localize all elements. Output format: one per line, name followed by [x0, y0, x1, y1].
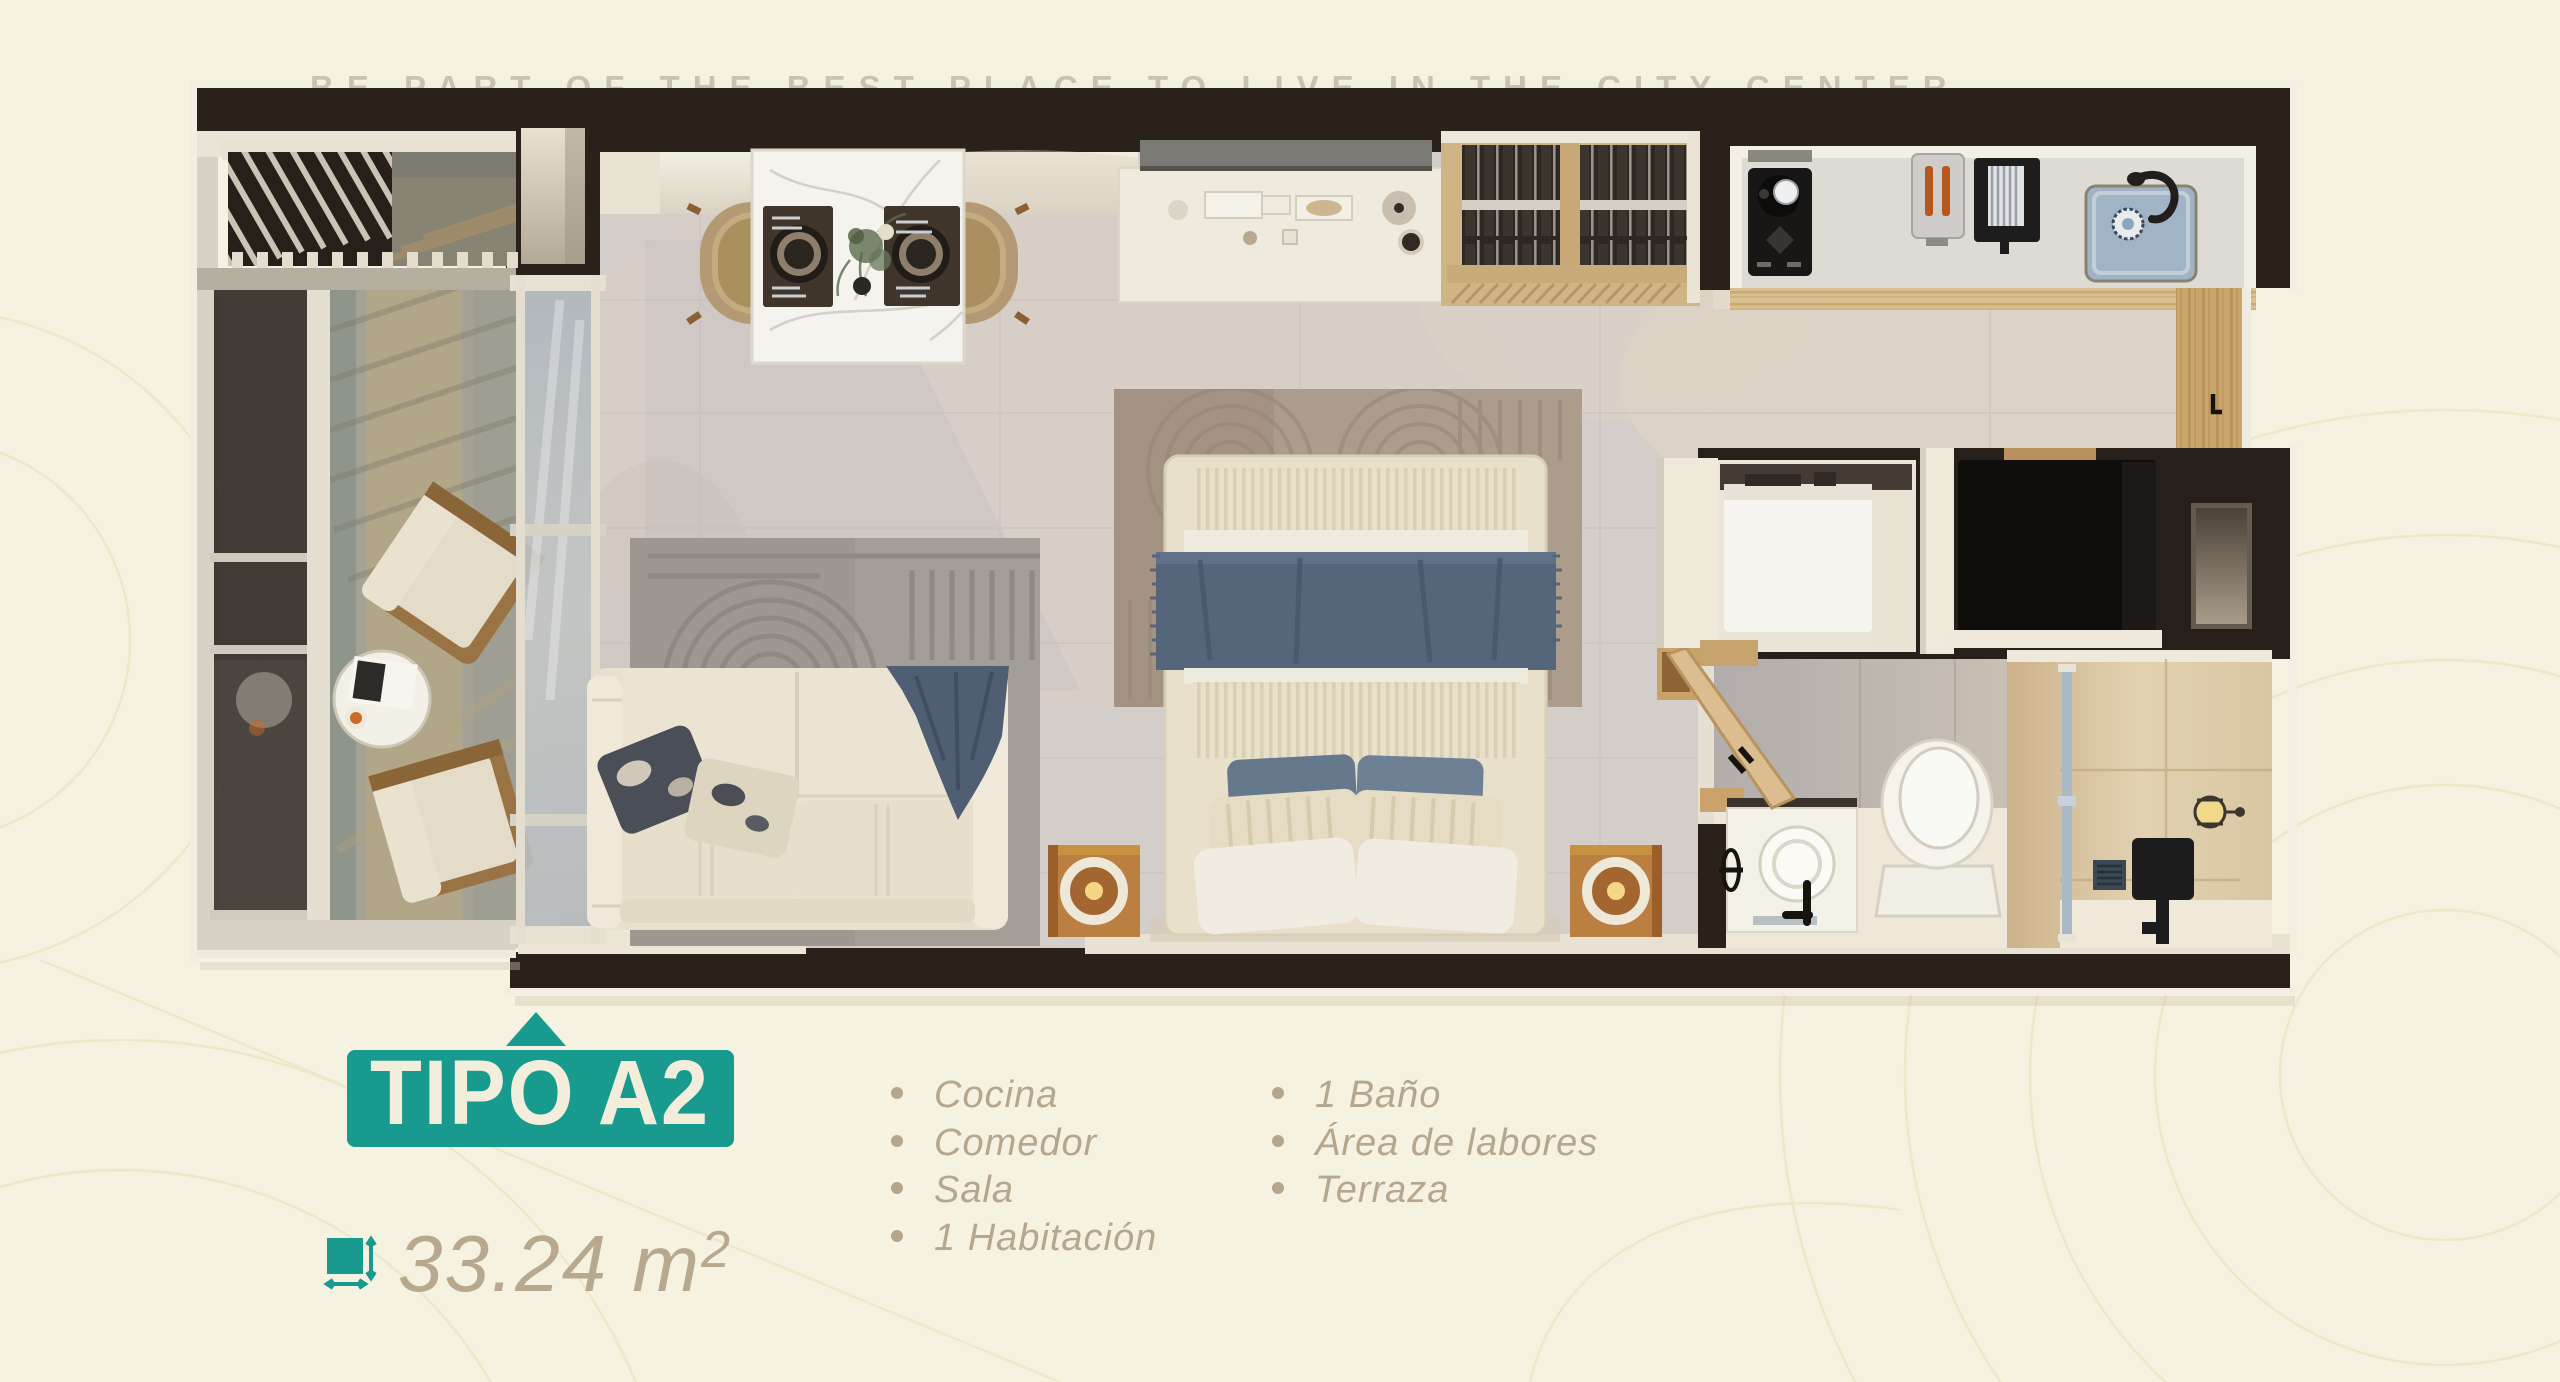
svg-text:Sala: Sala: [934, 1169, 1014, 1211]
svg-text:Área de labores: Área de labores: [1313, 1121, 1598, 1164]
svg-text:TIPO A2: TIPO A2: [370, 1042, 710, 1144]
svg-text:Comedor: Comedor: [934, 1122, 1098, 1164]
svg-text:1 Baño: 1 Baño: [1315, 1074, 1441, 1116]
svg-text:Cocina: Cocina: [934, 1074, 1058, 1116]
svg-text:1 Habitación: 1 Habitación: [934, 1217, 1157, 1259]
svg-text:Terraza: Terraza: [1315, 1169, 1449, 1211]
svg-text:33.24 m2: 33.24 m2: [398, 1219, 732, 1308]
